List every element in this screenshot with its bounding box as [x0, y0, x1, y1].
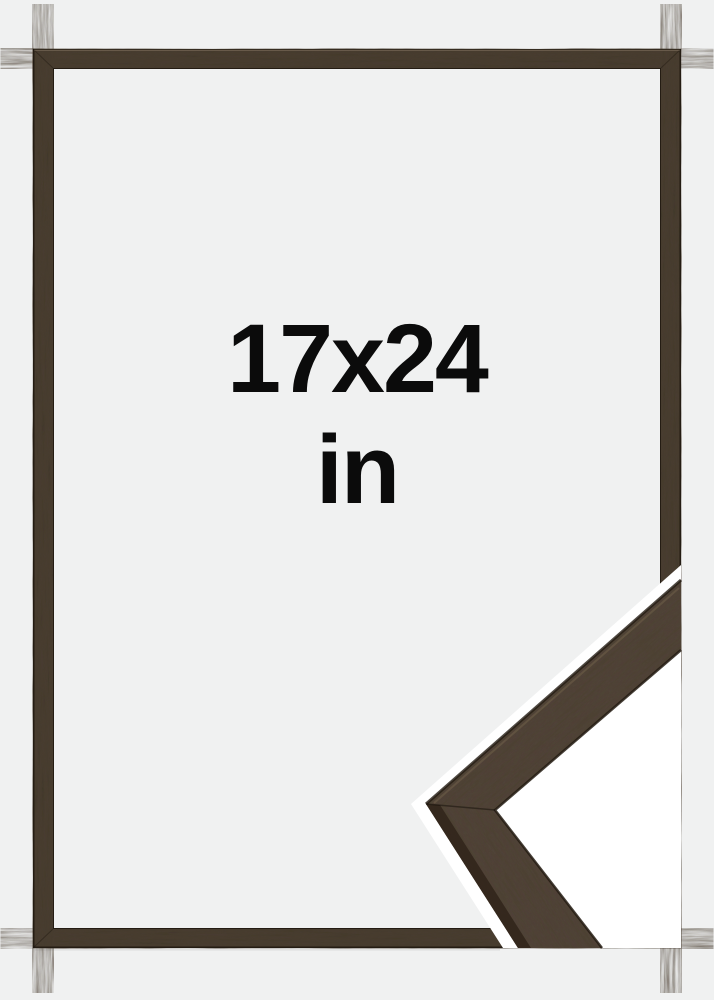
size-label: 17x24 in — [0, 303, 714, 525]
size-unit: in — [0, 414, 714, 525]
product-image: 17x24 in — [0, 0, 714, 1000]
size-dimensions: 17x24 — [0, 303, 714, 414]
